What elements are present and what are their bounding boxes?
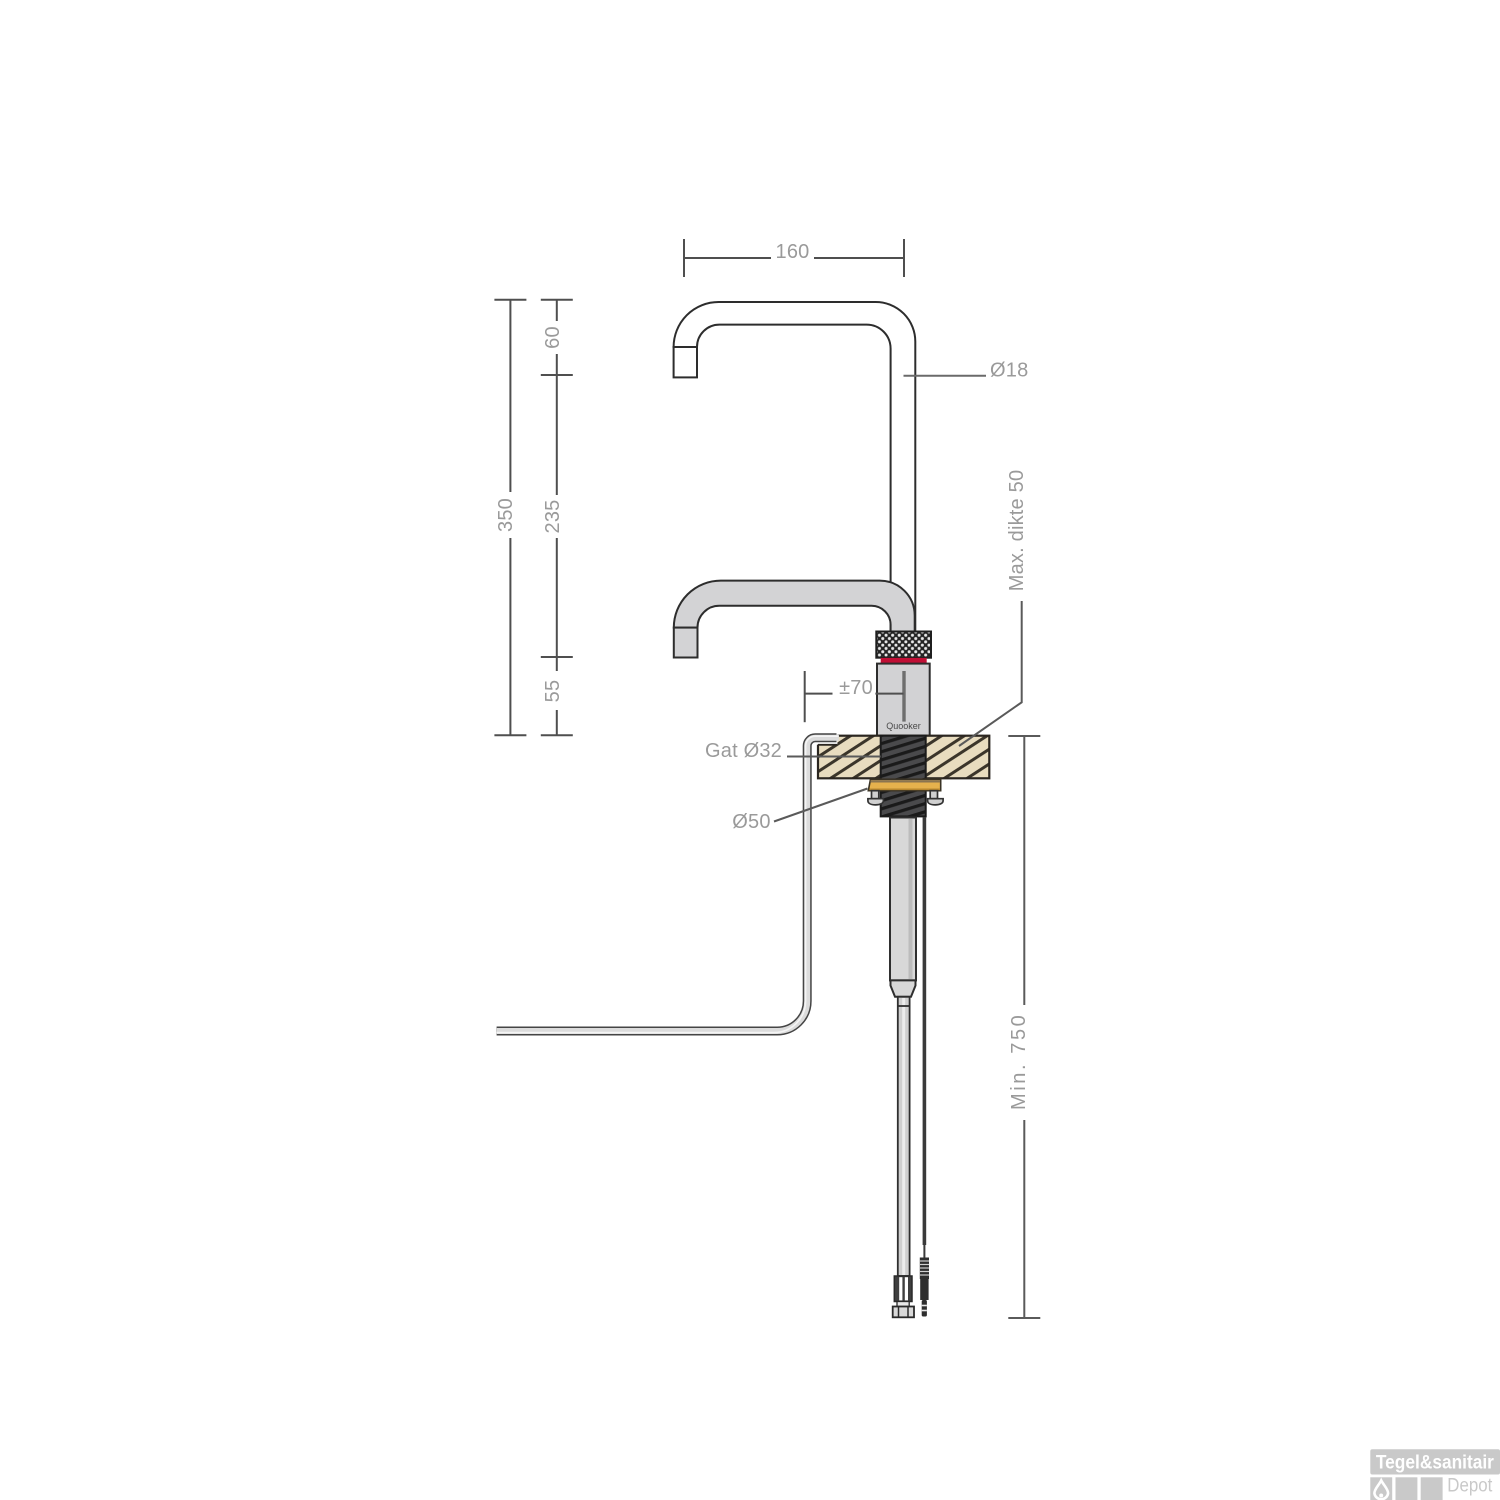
svg-text:Min. 750: Min. 750	[1008, 1015, 1030, 1110]
svg-text:55: 55	[542, 680, 564, 703]
svg-text:Ø18: Ø18	[990, 360, 1028, 382]
svg-text:±70: ±70	[839, 677, 873, 699]
svg-text:Ø50: Ø50	[732, 811, 770, 833]
svg-text:Gat Ø32: Gat Ø32	[705, 740, 782, 762]
svg-text:350: 350	[495, 498, 517, 532]
svg-text:235: 235	[542, 500, 564, 534]
svg-text:60: 60	[542, 326, 564, 349]
svg-text:Quooker: Quooker	[886, 721, 921, 731]
svg-text:160: 160	[776, 241, 810, 263]
svg-text:Depot: Depot	[1447, 1476, 1493, 1497]
svg-text:Tegel&sanitair: Tegel&sanitair	[1376, 1453, 1495, 1474]
svg-text:Max. dikte 50: Max. dikte 50	[1006, 470, 1028, 592]
